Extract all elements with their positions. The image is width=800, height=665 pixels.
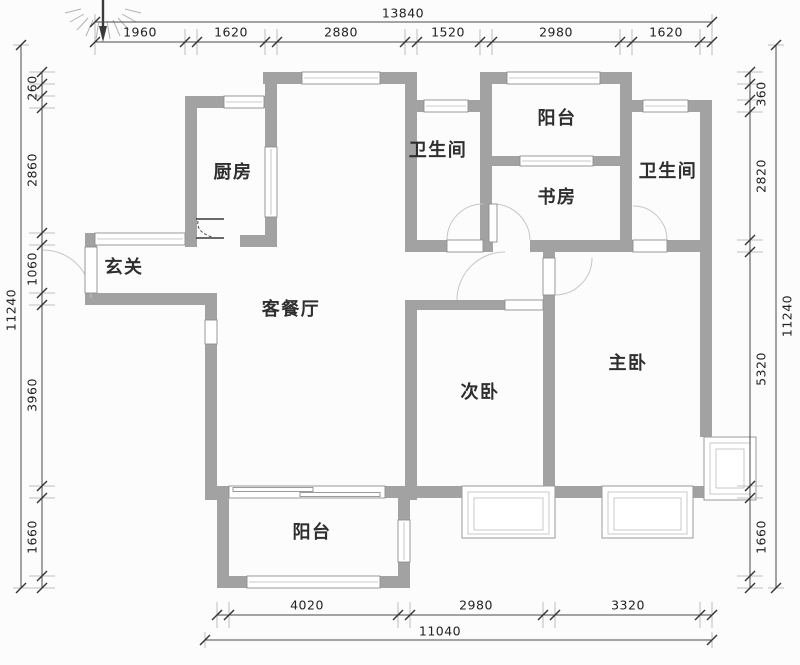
dim-bottom-segment-0: 4020 (290, 598, 324, 613)
dim-right-segment-1: 2820 (754, 159, 769, 193)
dim-top-segment-0: 1960 (123, 25, 157, 40)
dim-top-segment-3: 1520 (431, 25, 465, 40)
dim-left-segment-2: 1060 (25, 252, 40, 286)
dim-bottom-segment-1: 2980 (459, 598, 493, 613)
dim-bottom-segment-2: 3320 (611, 598, 645, 613)
room-label-entry: 玄关 (105, 253, 144, 279)
floorplan-page: 厨房 卫生间 阳台 书房 卫生间 玄关 客餐厅 次卧 主卧 阳台 13840 1… (0, 0, 800, 665)
room-label-living-dining: 客餐厅 (262, 295, 321, 321)
dim-right-segment-2: 5320 (754, 352, 769, 386)
dim-left-segment-3: 3960 (25, 378, 40, 412)
dim-right-segment-3: 1660 (754, 520, 769, 554)
room-label-balcony-bottom: 阳台 (293, 518, 332, 544)
room-label-bath-1: 卫生间 (409, 136, 468, 162)
dim-left-segment-1: 2860 (25, 153, 40, 187)
dim-bottom-total: 11040 (419, 624, 461, 639)
dim-left-total: 11240 (4, 289, 19, 331)
room-label-master-bedroom: 主卧 (609, 349, 648, 375)
dim-left-segment-0: 260 (25, 75, 40, 100)
kitchen-door (196, 219, 224, 238)
dim-left-segment-4: 1660 (25, 520, 40, 554)
room-label-kitchen: 厨房 (214, 158, 253, 184)
dim-right-segment-0: 360 (754, 81, 769, 106)
dim-top-segment-2: 2880 (324, 25, 358, 40)
dim-top-segment-4: 2980 (539, 25, 573, 40)
room-label-bedroom-second: 次卧 (461, 378, 500, 404)
dim-top-segment-5: 1620 (649, 25, 683, 40)
room-label-bath-2: 卫生间 (639, 157, 698, 183)
room-label-balcony-top: 阳台 (538, 104, 577, 130)
dim-right-total: 11240 (780, 295, 795, 337)
bay-windows (462, 437, 756, 538)
windows (95, 72, 688, 588)
dim-top-total: 13840 (382, 6, 424, 21)
floorplan-drawing (0, 0, 800, 665)
dim-top-segment-1: 1620 (214, 25, 248, 40)
sliding-door (229, 486, 385, 498)
room-label-study: 书房 (538, 183, 577, 209)
